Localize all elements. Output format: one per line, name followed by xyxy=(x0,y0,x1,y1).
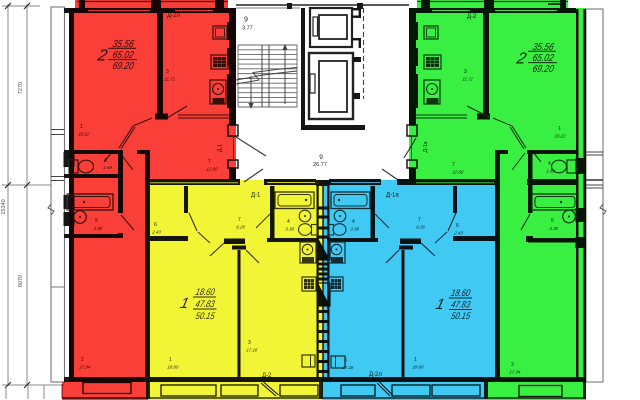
svg-text:7270: 7270 xyxy=(18,82,24,94)
svg-text:3.77: 3.77 xyxy=(242,26,253,32)
svg-text:26.77: 26.77 xyxy=(313,162,327,168)
svg-text:15340: 15340 xyxy=(1,199,7,214)
svg-text:8070: 8070 xyxy=(18,275,24,287)
svg-text:9: 9 xyxy=(244,17,248,24)
svg-text:9: 9 xyxy=(319,154,323,161)
